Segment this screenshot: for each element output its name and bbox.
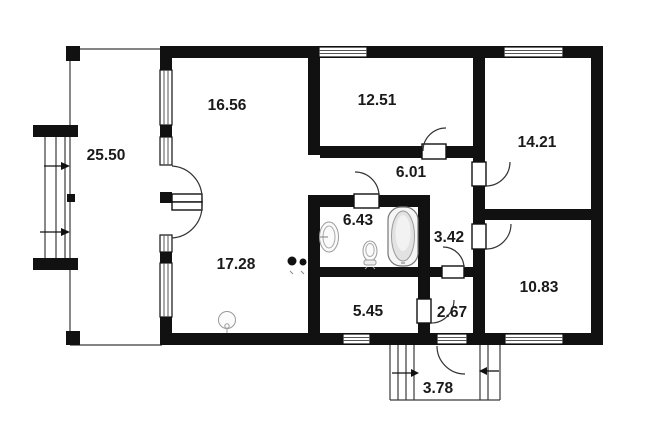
door-leaf xyxy=(172,194,202,202)
door-swing-icon xyxy=(486,224,511,249)
window-icon xyxy=(160,70,172,125)
room-label-room-bottom-middle: 5.45 xyxy=(353,303,384,320)
terrace-post-top xyxy=(66,46,80,61)
door-leaf xyxy=(422,144,446,159)
room-label-inner-hall: 3.42 xyxy=(434,229,464,246)
terrace-post-mid xyxy=(67,194,75,202)
door-leaf xyxy=(472,162,486,186)
room-label-vestibule: 2.67 xyxy=(437,304,467,321)
terrace-outline xyxy=(66,46,162,345)
door-leaf xyxy=(442,266,464,278)
window-icon xyxy=(160,263,172,317)
room-label-room-bottom-right: 10.83 xyxy=(520,279,559,296)
room-label-living-room: 17.28 xyxy=(217,256,256,273)
door-swing-icon xyxy=(437,346,465,374)
floor-plan-canvas: 25.50 16.56 12.51 14.21 6.01 6.43 3.42 1… xyxy=(0,0,668,442)
toilet-icon xyxy=(363,241,377,269)
french-doors xyxy=(172,166,202,238)
door-swing-icon xyxy=(172,206,202,238)
exterior-wall-right xyxy=(591,46,603,345)
room-label-bathroom: 6.43 xyxy=(343,212,374,229)
door-swing-icon xyxy=(443,247,464,268)
direction-arrow-icon xyxy=(479,367,499,375)
window-icon xyxy=(319,47,367,57)
room-label-room-top-left: 16.56 xyxy=(208,97,247,114)
ceiling-light-icon xyxy=(219,312,236,334)
window-icon xyxy=(160,137,172,165)
door-swing-icon xyxy=(172,166,202,198)
door-swing-icon xyxy=(486,162,510,186)
door-leaf xyxy=(417,299,431,323)
room-label-room-top-middle: 12.51 xyxy=(358,92,397,109)
door-leaf xyxy=(472,224,486,249)
window-icon xyxy=(504,47,563,57)
room-label-terrace: 25.50 xyxy=(87,147,126,164)
window-icon xyxy=(505,334,563,344)
sink-icon xyxy=(320,222,339,252)
floor-plan: 25.50 16.56 12.51 14.21 6.01 6.43 3.42 1… xyxy=(0,0,668,442)
interior-walls xyxy=(308,58,591,345)
door-leaf xyxy=(172,202,202,210)
room-label-hallway: 6.01 xyxy=(396,164,427,181)
stove-icon xyxy=(288,257,307,275)
door-leaf xyxy=(354,194,379,208)
terrace-post-bottom xyxy=(66,331,80,345)
window-icon xyxy=(343,334,370,344)
room-label-room-top-right: 14.21 xyxy=(518,134,557,151)
room-label-porch: 3.78 xyxy=(423,380,454,397)
entry-door xyxy=(437,334,467,374)
window-icon xyxy=(160,235,172,252)
bathtub-icon xyxy=(388,207,418,266)
door-swing-icon xyxy=(355,172,379,196)
direction-arrow-icon xyxy=(44,162,70,170)
